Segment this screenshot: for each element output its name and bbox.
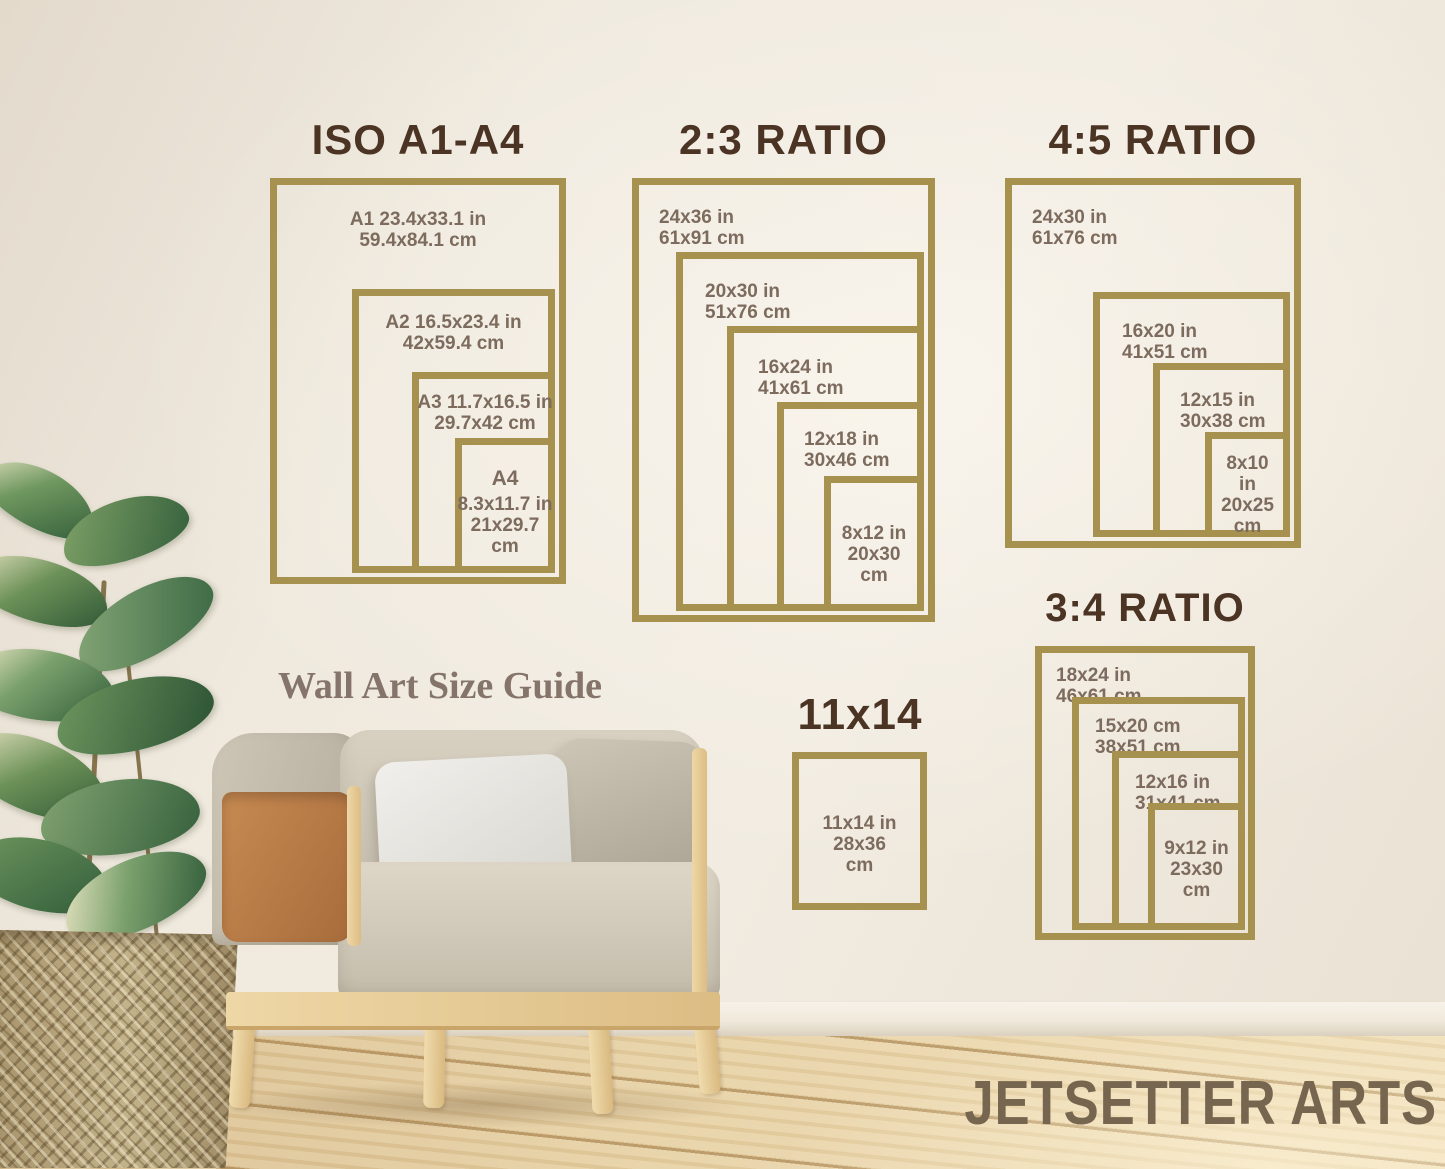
wood-post-right bbox=[692, 748, 707, 1004]
frame-label-20x30: 20x30 in51x76 cm bbox=[705, 281, 791, 323]
frame-label-16x20: 16x20 in41x51 cm bbox=[1122, 321, 1208, 363]
frame-label-8x10: 8x10 in20x25cm bbox=[1216, 453, 1279, 537]
frame-9x12: 9x12 in23x30cm bbox=[1148, 803, 1245, 930]
wicker-planter bbox=[0, 930, 238, 1168]
group-title-2-3: 2:3 RATIO bbox=[632, 116, 935, 164]
frame-label-a3: A3 11.7x16.5 in29.7x42 cm bbox=[405, 392, 565, 434]
group-title-11x14: 11x14 bbox=[775, 690, 945, 740]
guide-title: Wall Art Size Guide bbox=[240, 664, 640, 708]
frame-label-a1: A1 23.4x33.1 in59.4x84.1 cm bbox=[281, 209, 555, 251]
frame-label-12x18: 12x18 in30x46 cm bbox=[804, 429, 890, 471]
frame-label-24x30: 24x30 in61x76 cm bbox=[1032, 207, 1118, 249]
frame-label-12x15: 12x15 in30x38 cm bbox=[1180, 390, 1266, 432]
frame-label-9x12: 9x12 in23x30cm bbox=[1159, 838, 1234, 901]
frame-label-a2: A2 16.5x23.4 in42x59.4 cm bbox=[359, 312, 548, 354]
group-title-iso: ISO A1-A4 bbox=[270, 116, 566, 164]
frame-8x10: 8x10 in20x25cm bbox=[1205, 432, 1290, 537]
leather-side-panel bbox=[222, 792, 352, 942]
seat-cushion bbox=[338, 862, 720, 1004]
frame-label-16x24: 16x24 in41x61 cm bbox=[758, 357, 844, 399]
frame-label-8x12: 8x12 in20x30cm bbox=[835, 523, 913, 586]
chair-shadow bbox=[205, 1082, 750, 1128]
group-title-4-5: 4:5 RATIO bbox=[1005, 116, 1301, 164]
frame-label-24x36: 24x36 in61x91 cm bbox=[659, 207, 745, 249]
group-title-3-4: 3:4 RATIO bbox=[1035, 586, 1255, 631]
brand-watermark: JETSETTER ARTS bbox=[964, 1068, 1437, 1139]
frame-label-a4: A4 8.3x11.7 in21x29.7cm bbox=[455, 468, 555, 557]
wood-post-left bbox=[347, 786, 361, 946]
frame-label-11x14: 11x14 in28x36cm bbox=[803, 813, 916, 876]
frame-11x14: 11x14 in28x36cm bbox=[792, 752, 927, 910]
chair-base-rail bbox=[226, 992, 720, 1030]
frame-8x12: 8x12 in20x30cm bbox=[824, 476, 924, 611]
